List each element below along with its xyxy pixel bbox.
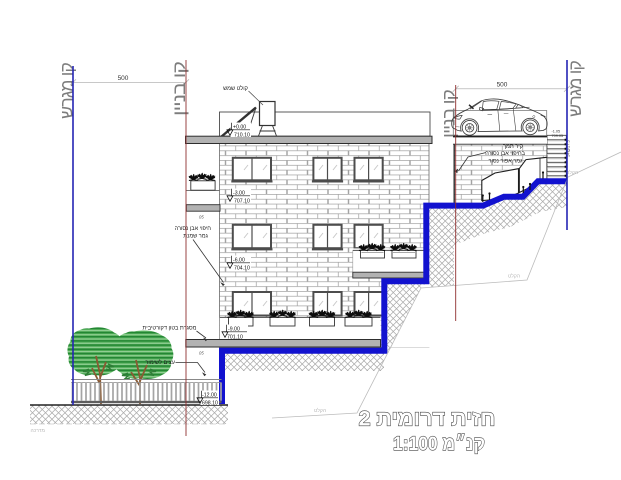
svg-text:קו מגרש: קו מגרש bbox=[565, 61, 585, 117]
svg-text:הקלט: הקלט bbox=[508, 273, 520, 280]
svg-text:חזית דרומית 2: חזית דרומית 2 bbox=[359, 407, 496, 431]
svg-text:-9.00: -9.00 bbox=[228, 327, 240, 333]
svg-text:קולט שמש: קולט שמש bbox=[223, 85, 248, 92]
svg-text:מסגרת בטון דקורטיבית: מסגרת בטון דקורטיבית bbox=[143, 326, 197, 332]
svg-text:500: 500 bbox=[497, 82, 508, 89]
svg-text:707.10: 707.10 bbox=[234, 198, 250, 204]
svg-text:גמר אפור נסור: גמר אפור נסור bbox=[489, 159, 524, 165]
svg-text:הקלט: הקלט bbox=[314, 407, 326, 414]
svg-text:05: 05 bbox=[199, 215, 204, 220]
svg-text:-12.00: -12.00 bbox=[202, 393, 217, 399]
svg-text:698.10: 698.10 bbox=[202, 400, 218, 406]
svg-text:-6.00: -6.00 bbox=[233, 258, 245, 264]
svg-text:05: 05 bbox=[199, 351, 204, 356]
svg-text:704.10: 704.10 bbox=[234, 265, 250, 271]
svg-text:קיר תמך: קיר תמך bbox=[503, 144, 523, 150]
svg-text:-3.00: -3.00 bbox=[233, 191, 245, 197]
svg-text:500: 500 bbox=[118, 75, 129, 82]
svg-text:709.05: 709.05 bbox=[552, 134, 564, 138]
svg-text:עצים לשימור: עצים לשימור bbox=[145, 359, 175, 366]
svg-text:גמר שמנת: גמר שמנת bbox=[183, 234, 208, 240]
svg-text:חיפוי אבן נסורה: חיפוי אבן נסורה bbox=[175, 226, 212, 232]
svg-text:קנ״מ 1:100: קנ״מ 1:100 bbox=[393, 433, 485, 455]
svg-text:מדרכה: מדרכה bbox=[30, 428, 45, 434]
svg-text:בחיפוי אבן נסורה: בחיפוי אבן נסורה bbox=[485, 151, 525, 157]
svg-text:710.10: 710.10 bbox=[234, 132, 250, 138]
svg-text:+0.00: +0.00 bbox=[233, 125, 246, 131]
